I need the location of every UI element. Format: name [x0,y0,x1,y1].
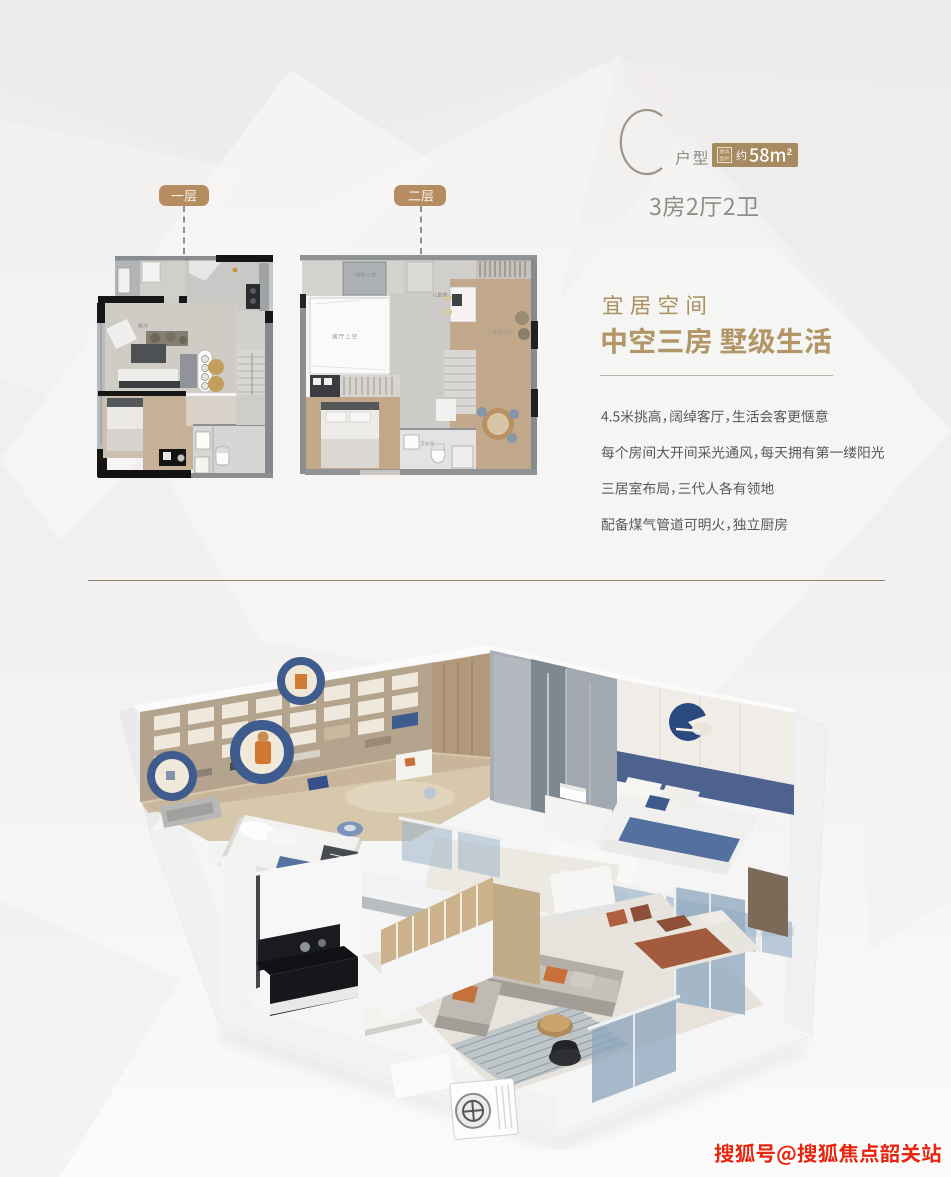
svg-text:2: 2 [787,147,792,157]
